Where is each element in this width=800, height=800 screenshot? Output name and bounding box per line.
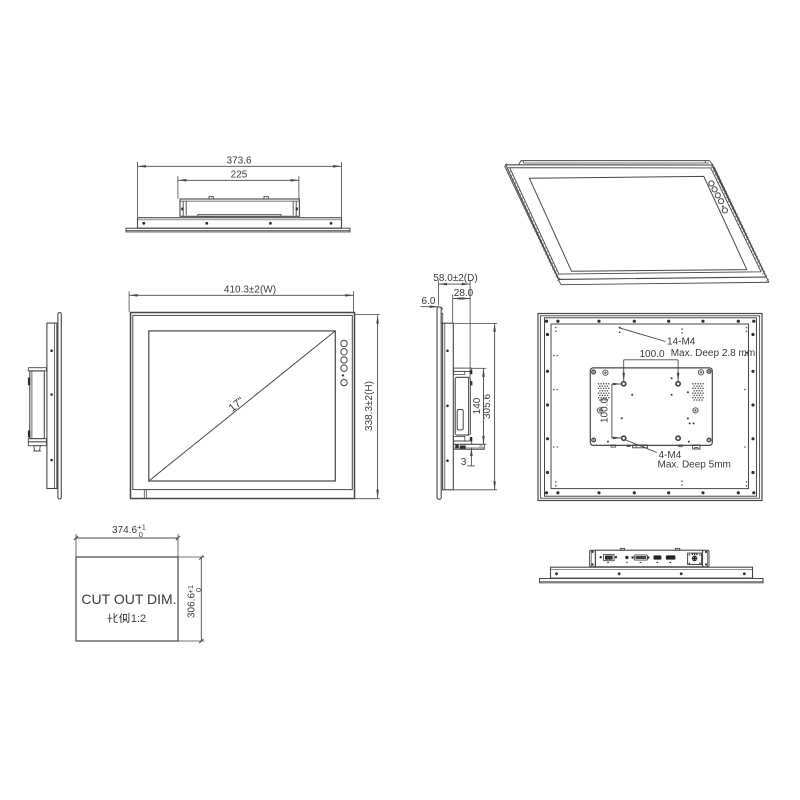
svg-text:0: 0 [194, 588, 203, 592]
svg-text:14-M4: 14-M4 [667, 337, 696, 348]
svg-text:305.6: 305.6 [482, 394, 493, 419]
svg-text:140: 140 [472, 397, 483, 414]
svg-text:306.6: 306.6 [186, 593, 197, 618]
svg-text:100.0: 100.0 [600, 398, 611, 423]
svg-text:28.0: 28.0 [454, 288, 474, 299]
svg-text:CUT OUT DIM.: CUT OUT DIM. [81, 591, 176, 607]
svg-text:6.0: 6.0 [422, 296, 436, 307]
svg-text:1:2: 1:2 [131, 613, 146, 625]
svg-text:100.0: 100.0 [639, 349, 664, 360]
svg-text:Max. Deep 5mm: Max. Deep 5mm [658, 460, 731, 471]
svg-text:374.6: 374.6 [112, 525, 137, 536]
svg-text:338.3±2(H): 338.3±2(H) [364, 381, 375, 431]
svg-text:373.6: 373.6 [226, 156, 251, 167]
svg-text:410.3±2(W): 410.3±2(W) [224, 284, 276, 295]
svg-text:Max. Deep 2.8 mm: Max. Deep 2.8 mm [671, 348, 755, 359]
svg-text:3: 3 [461, 457, 467, 468]
svg-text:225: 225 [231, 169, 248, 180]
svg-text:58.0±2(D): 58.0±2(D) [433, 273, 477, 284]
